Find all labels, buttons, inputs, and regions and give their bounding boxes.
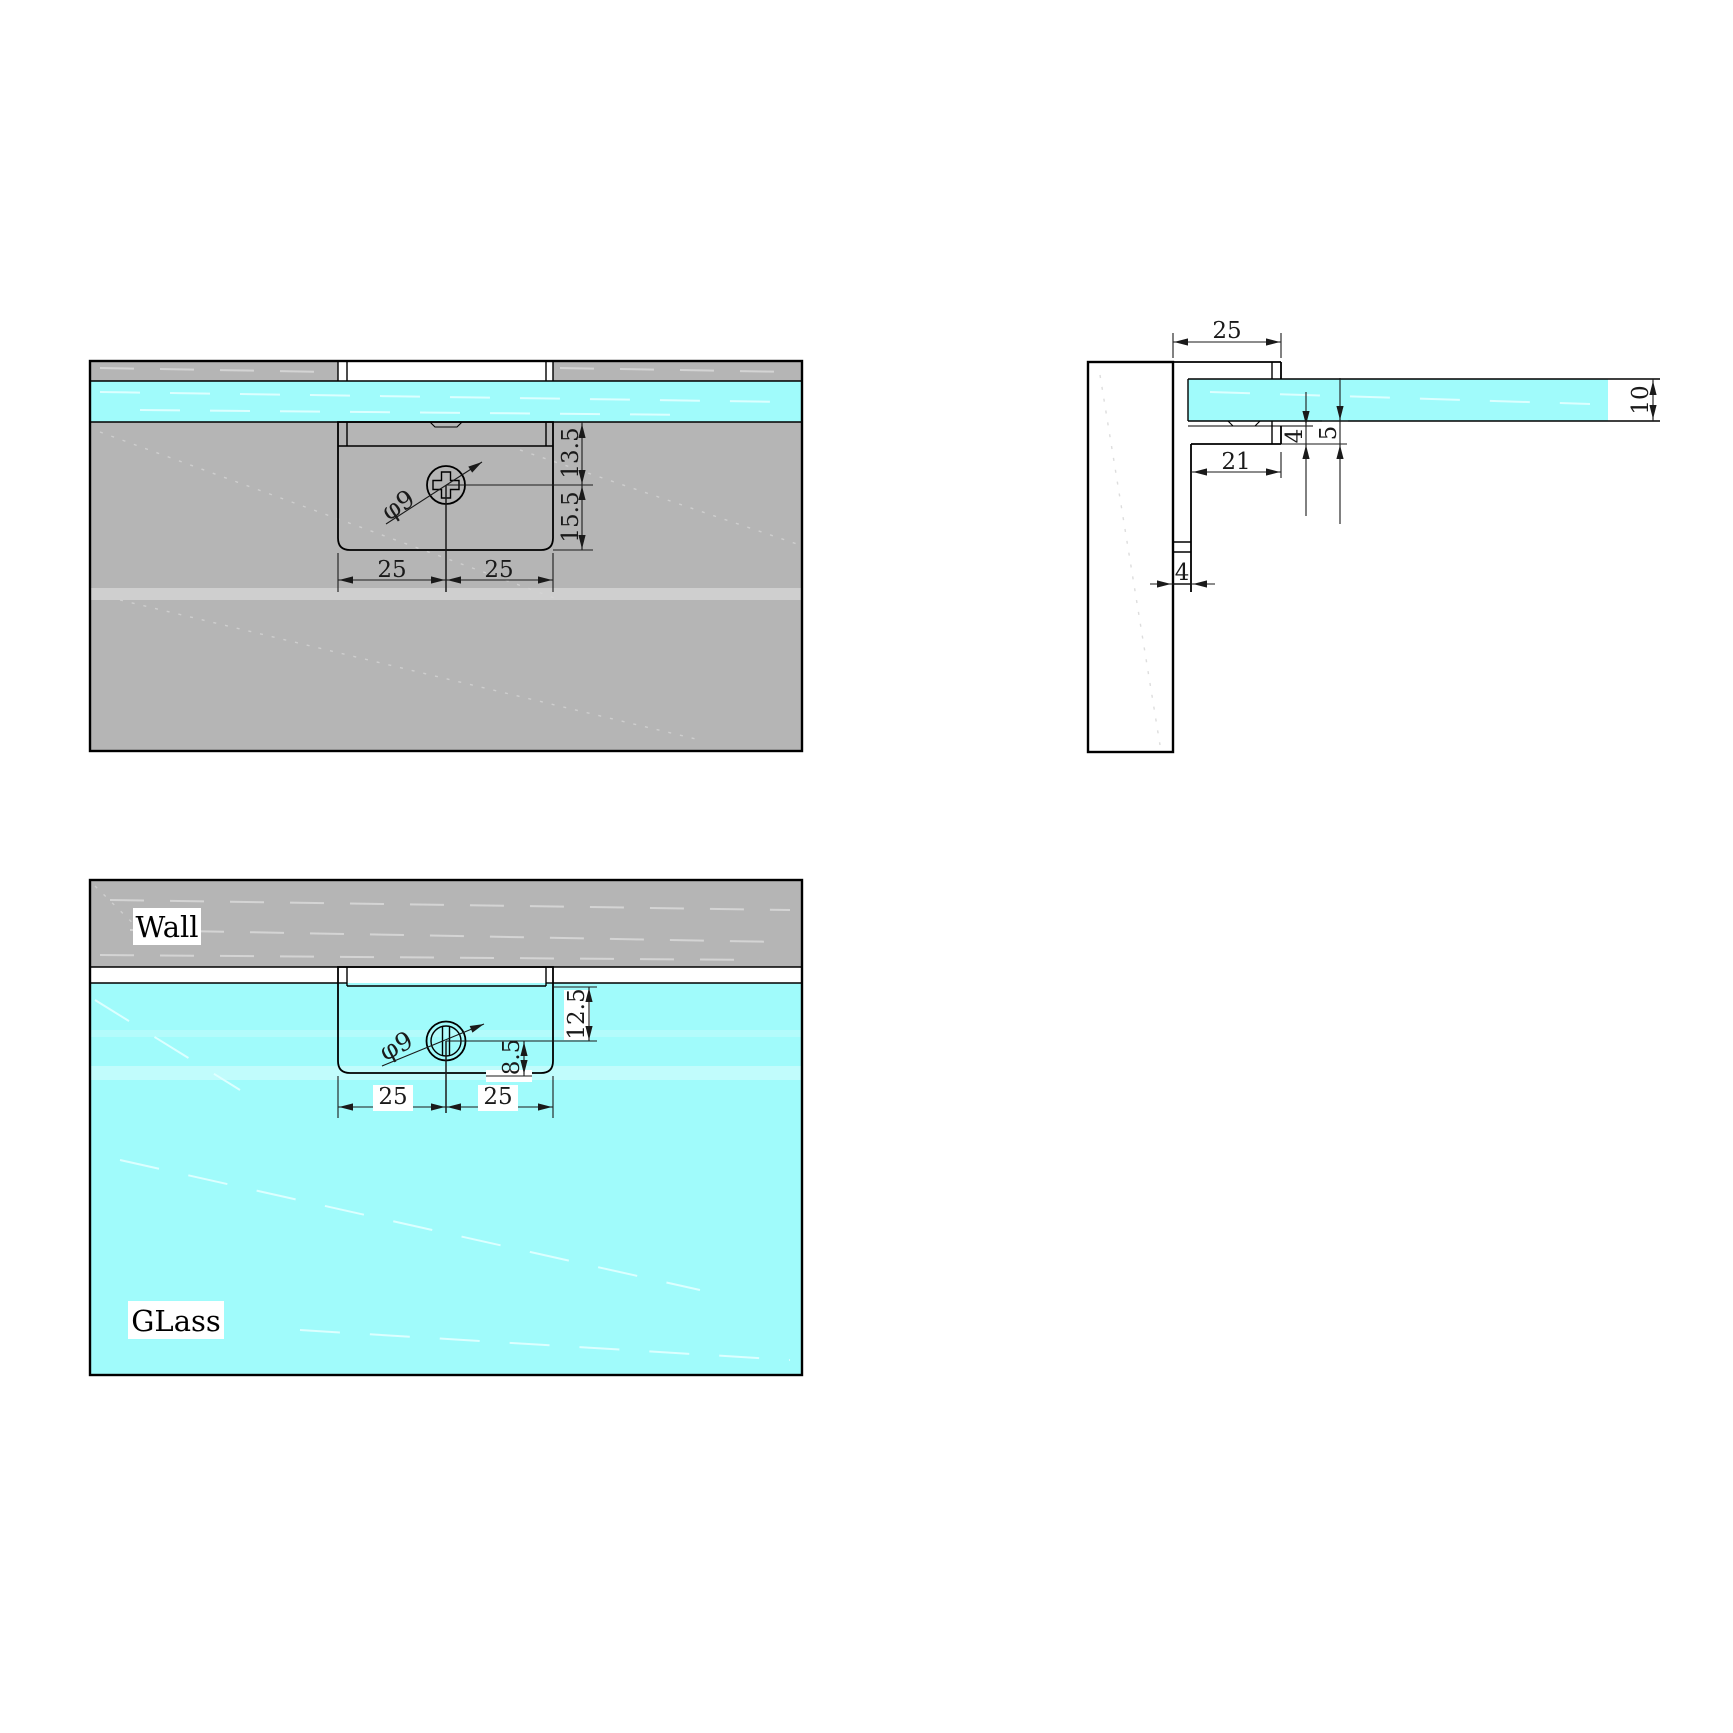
dim-right-25-glass-side: 25 [483, 1084, 512, 1110]
view-glass-side-front: φ9 12.5 8.5 [90, 880, 802, 1375]
dim-5: 5 [1316, 426, 1342, 441]
bracket-tab [338, 361, 553, 381]
drawing-canvas: 13.5 15.5 25 25 φ9 [0, 0, 1733, 1733]
glass-section [1188, 379, 1608, 421]
dim-25-top: 25 [1212, 318, 1241, 344]
dim-10: 10 [1628, 385, 1654, 414]
gap-strip [90, 967, 802, 983]
dim-12-5-text: 12.5 [564, 988, 590, 1039]
page-background [0, 0, 1733, 1733]
dim-8-5-text: 8.5 [499, 1039, 525, 1076]
dim-13-5: 13.5 [558, 427, 584, 478]
view-wall-side-front: 13.5 15.5 25 25 φ9 [90, 361, 802, 751]
wall-label: Wall [135, 910, 198, 944]
glass-label: GLass [131, 1304, 220, 1338]
dim-21: 21 [1221, 449, 1250, 475]
dim-4-arm: 4 [1282, 429, 1308, 444]
dim-right-25: 25 [484, 557, 513, 583]
dim-left-25-glass-side: 25 [378, 1084, 407, 1110]
dim-left-25: 25 [377, 557, 406, 583]
technical-drawing: 13.5 15.5 25 25 φ9 [0, 0, 1733, 1733]
dim-15-5: 15.5 [558, 491, 584, 542]
dim-4-plate: 4 [1175, 560, 1190, 586]
